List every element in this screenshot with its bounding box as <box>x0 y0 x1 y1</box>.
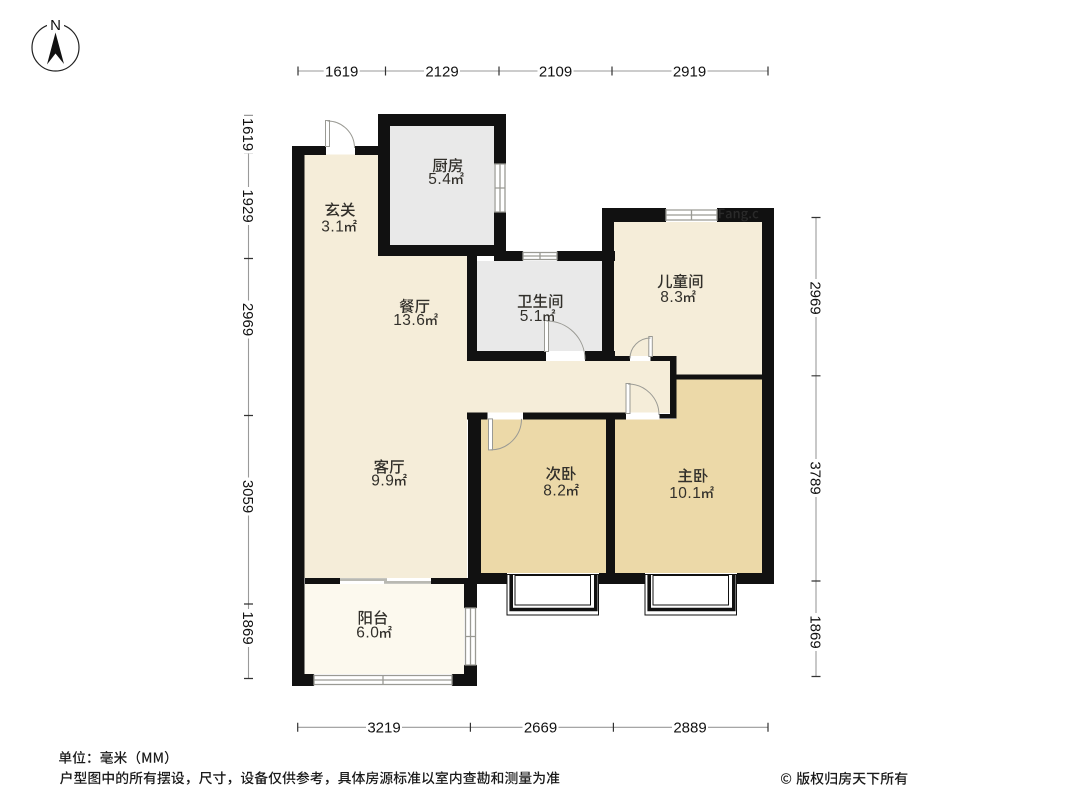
svg-text:1619: 1619 <box>325 63 358 80</box>
svg-text:6.0: 6.0 <box>356 625 379 642</box>
svg-text:2969: 2969 <box>239 303 256 336</box>
svg-text:3219: 3219 <box>367 720 400 737</box>
svg-text:2109: 2109 <box>539 63 572 80</box>
svg-text:2669: 2669 <box>524 720 557 737</box>
svg-text:1869: 1869 <box>807 615 824 648</box>
svg-text:9.9: 9.9 <box>371 473 394 490</box>
svg-text:1929: 1929 <box>239 189 256 222</box>
svg-text:1619: 1619 <box>239 118 256 151</box>
svg-text:10.1: 10.1 <box>669 485 701 502</box>
svg-text:3789: 3789 <box>807 461 824 494</box>
svg-text:2969: 2969 <box>807 281 824 314</box>
svg-text:8.2: 8.2 <box>543 483 566 500</box>
svg-text:2129: 2129 <box>425 63 458 80</box>
svg-text:3.1: 3.1 <box>321 219 344 236</box>
svg-text:13.6: 13.6 <box>393 312 425 329</box>
svg-text:5.4: 5.4 <box>428 171 451 188</box>
svg-text:3059: 3059 <box>239 480 256 513</box>
svg-text:2889: 2889 <box>673 720 706 737</box>
svg-text:8.3: 8.3 <box>660 289 683 306</box>
svg-text:N: N <box>50 17 61 34</box>
svg-text:5.1: 5.1 <box>520 308 543 325</box>
svg-text:1869: 1869 <box>239 611 256 644</box>
svg-text:2919: 2919 <box>673 63 706 80</box>
